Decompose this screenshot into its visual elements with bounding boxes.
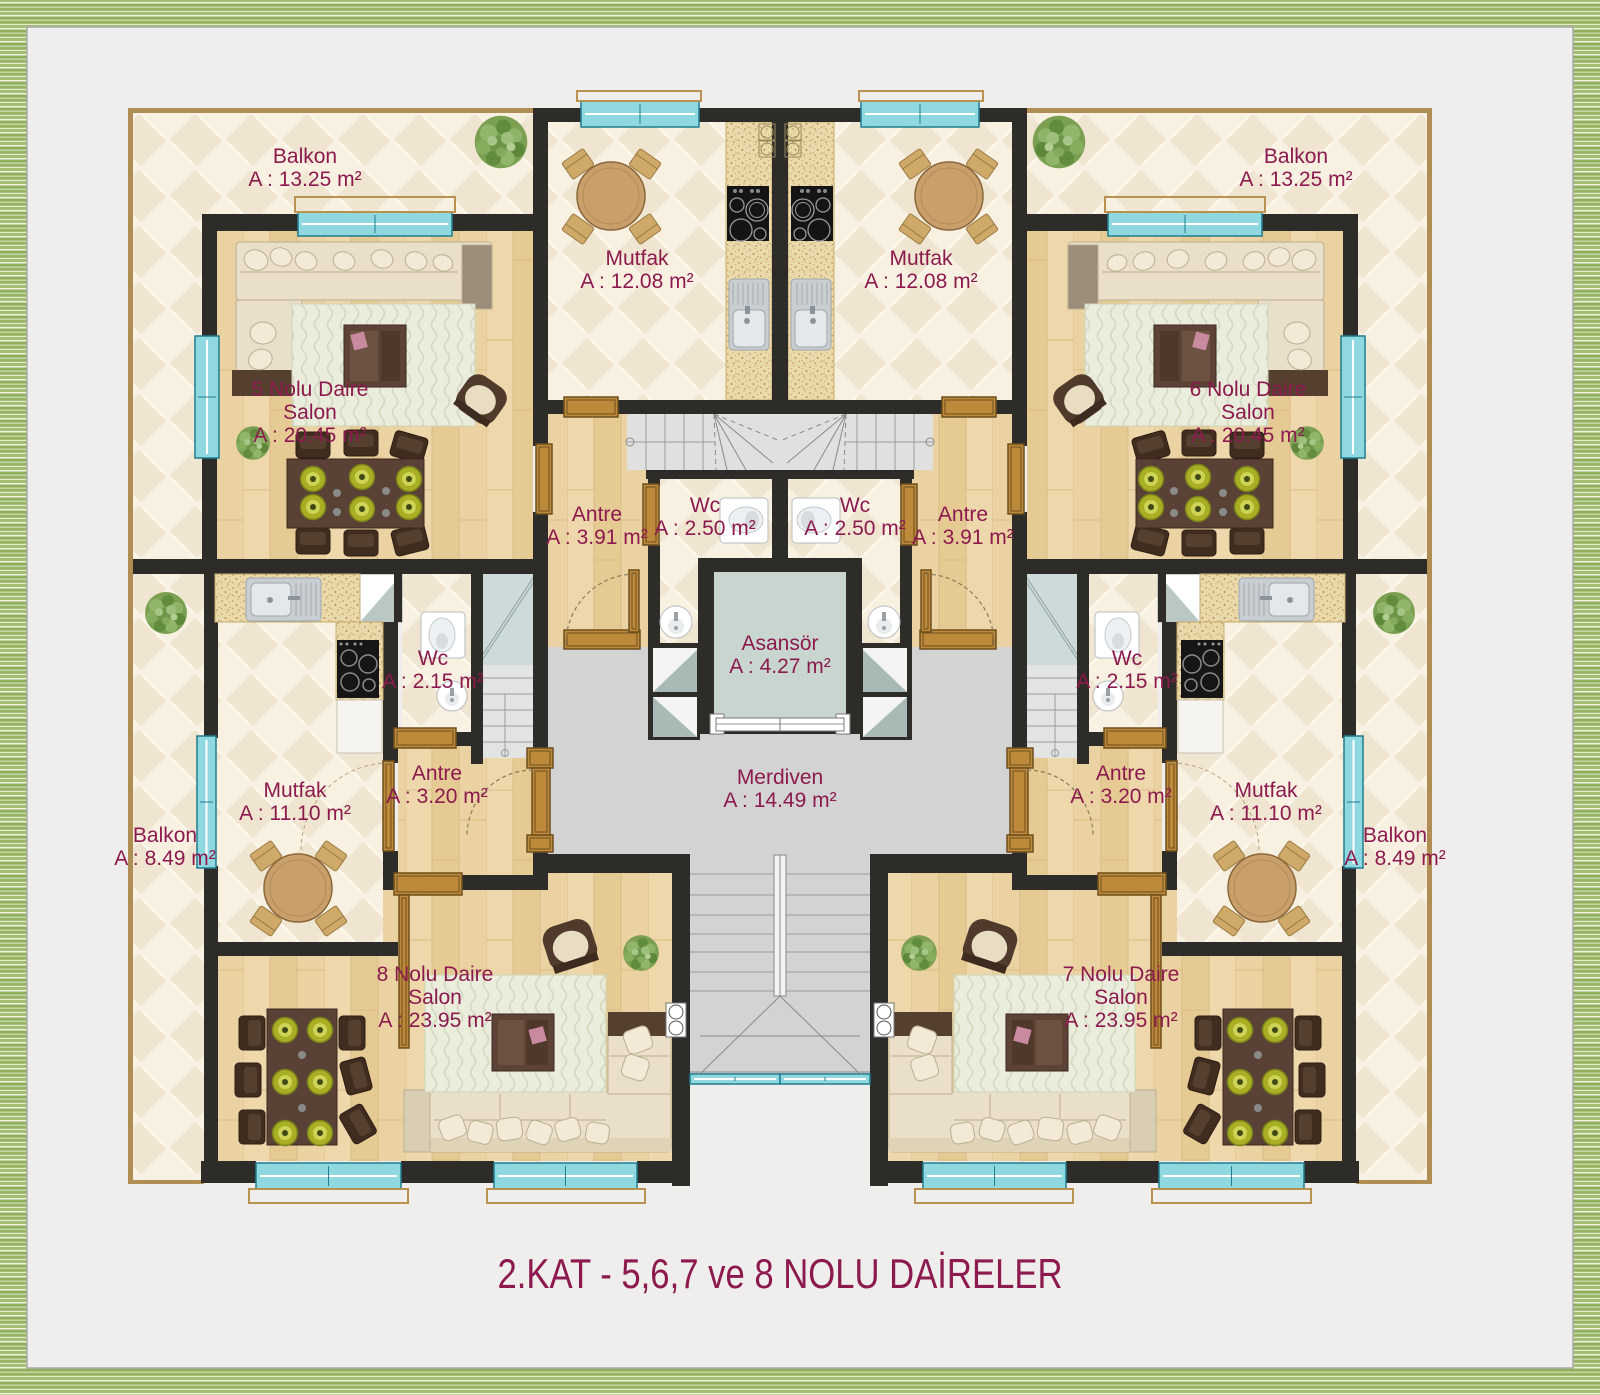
svg-text:A : 2.50 m²: A : 2.50 m² [804,517,906,540]
svg-text:A : 2.15 m²: A : 2.15 m² [382,670,484,693]
svg-text:Salon: Salon [408,986,462,1009]
svg-text:5 Nolu Daire: 5 Nolu Daire [252,378,369,401]
svg-text:A : 11.10 m²: A : 11.10 m² [1210,802,1322,825]
svg-text:A : 20.45 m²: A : 20.45 m² [253,424,366,447]
svg-text:A : 4.27 m²: A : 4.27 m² [729,655,831,678]
svg-text:A : 3.91 m²: A : 3.91 m² [912,526,1014,549]
svg-text:A : 13.25 m²: A : 13.25 m² [248,168,361,191]
svg-text:A : 13.25 m²: A : 13.25 m² [1239,168,1352,191]
svg-text:Antre: Antre [1096,762,1146,785]
svg-text:Mutfak: Mutfak [263,779,327,802]
svg-text:Antre: Antre [938,503,988,526]
svg-text:Salon: Salon [283,401,337,424]
svg-text:Wc: Wc [840,494,870,517]
svg-text:Merdiven: Merdiven [737,766,823,789]
svg-text:Mutfak: Mutfak [1234,779,1298,802]
svg-text:Balkon: Balkon [273,145,337,168]
svg-text:Salon: Salon [1094,986,1148,1009]
svg-text:A : 8.49 m²: A : 8.49 m² [114,847,216,870]
svg-text:A : 2.50 m²: A : 2.50 m² [654,517,756,540]
svg-text:A : 8.49 m²: A : 8.49 m² [1344,847,1446,870]
svg-text:Antre: Antre [572,503,622,526]
svg-text:A : 12.08 m²: A : 12.08 m² [580,270,693,293]
svg-text:A : 12.08 m²: A : 12.08 m² [864,270,977,293]
svg-text:A : 23.95 m²: A : 23.95 m² [1064,1009,1177,1032]
svg-text:A : 11.10 m²: A : 11.10 m² [239,802,351,825]
svg-text:Antre: Antre [412,762,462,785]
svg-text:Wc: Wc [690,494,720,517]
svg-text:Mutfak: Mutfak [605,247,669,270]
svg-text:7 Nolu Daire: 7 Nolu Daire [1063,963,1180,986]
svg-text:Wc: Wc [418,647,448,670]
svg-text:Salon: Salon [1221,401,1275,424]
svg-text:A : 3.20 m²: A : 3.20 m² [386,785,488,808]
svg-text:6 Nolu Daire: 6 Nolu Daire [1190,378,1307,401]
svg-text:A : 2.15 m²: A : 2.15 m² [1076,670,1178,693]
svg-text:Wc: Wc [1112,647,1142,670]
svg-text:Mutfak: Mutfak [889,247,953,270]
svg-text:Balkon: Balkon [133,824,197,847]
svg-text:Balkon: Balkon [1264,145,1328,168]
svg-text:A : 3.91 m²: A : 3.91 m² [546,526,648,549]
svg-text:Asansör: Asansör [741,632,818,655]
svg-text:A : 3.20 m²: A : 3.20 m² [1070,785,1172,808]
svg-text:A : 14.49 m²: A : 14.49 m² [723,789,836,812]
svg-text:8 Nolu Daire: 8 Nolu Daire [377,963,494,986]
svg-text:Balkon: Balkon [1363,824,1427,847]
svg-text:A : 23.95 m²: A : 23.95 m² [378,1009,491,1032]
svg-text:2.KAT - 5,6,7 ve 8 NOLU DAİREL: 2.KAT - 5,6,7 ve 8 NOLU DAİRELER [498,1250,1063,1297]
svg-text:A : 20.45 m²: A : 20.45 m² [1191,424,1304,447]
